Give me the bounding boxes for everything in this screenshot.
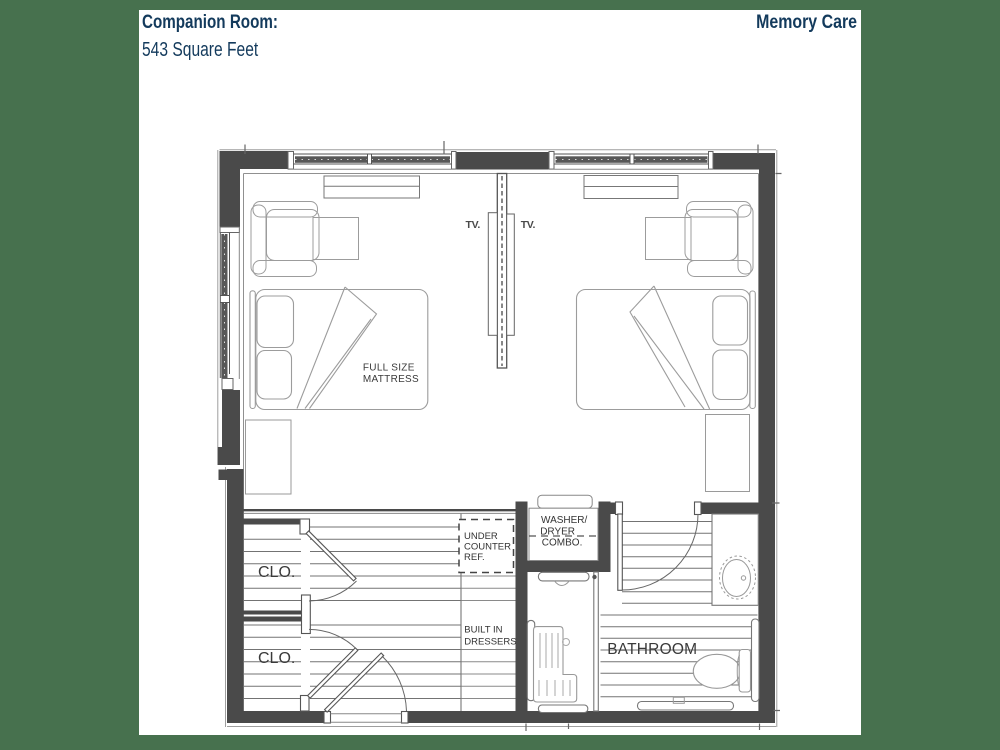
svg-text:FULL SIZE: FULL SIZE bbox=[363, 363, 415, 374]
svg-text:DRESSERS: DRESSERS bbox=[464, 636, 516, 647]
svg-text:COUNTER: COUNTER bbox=[464, 542, 511, 553]
svg-text:CLO.: CLO. bbox=[258, 564, 295, 581]
svg-text:REF.: REF. bbox=[464, 552, 485, 563]
svg-text:CLO.: CLO. bbox=[258, 650, 295, 667]
svg-text:TV.: TV. bbox=[521, 219, 536, 231]
svg-text:BATHROOM: BATHROOM bbox=[607, 641, 697, 658]
svg-text:TV.: TV. bbox=[466, 219, 481, 231]
svg-text:COMBO.: COMBO. bbox=[542, 538, 583, 549]
svg-text:WASHER/: WASHER/ bbox=[541, 515, 588, 526]
svg-text:UNDER: UNDER bbox=[464, 531, 498, 542]
svg-text:DRYER: DRYER bbox=[540, 526, 575, 537]
svg-text:MATTRESS: MATTRESS bbox=[363, 374, 419, 385]
svg-text:BUILT IN: BUILT IN bbox=[464, 625, 502, 636]
